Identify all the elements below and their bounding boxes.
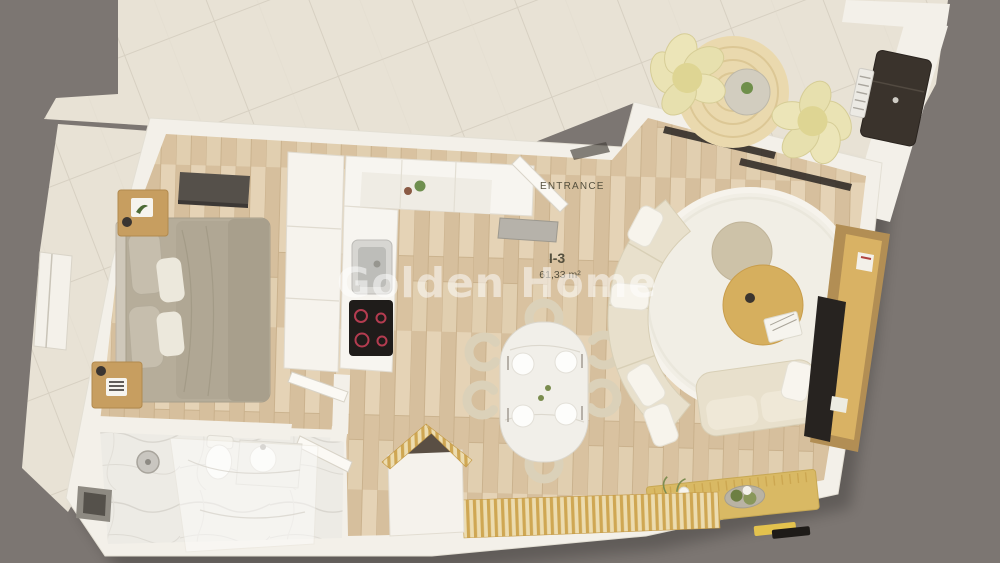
bed-cushion-2 [156,311,185,357]
shelf-books-2 [830,396,848,413]
nightstand-lamp [96,366,106,376]
plate-3 [512,405,534,427]
dining-table [500,322,588,462]
table-deco-2 [538,395,544,401]
wardrobe [284,152,344,372]
slat-house-box [388,450,464,536]
hall-wall-stub [332,374,350,434]
table-deco-1 [545,385,551,391]
floor-plan-render: ENTRANCE [0,0,1000,563]
terrace-table-plant [741,82,753,94]
plate-1 [512,353,534,375]
shower-head-center [145,459,151,465]
table-cup [745,293,755,303]
nightstand-clock [122,217,132,227]
nightstand-south-frame [106,378,127,396]
shelf-books-1 [856,252,874,272]
watermark-text: Golden Home [337,259,658,307]
bed-blanket [228,219,269,401]
kitchen-cooktop [349,300,393,356]
shower-glass-panel [170,438,318,552]
floor-plan-canvas: ENTRANCE [0,0,1000,563]
kitchen-oven-front [498,218,558,242]
kitchen-plant [415,181,426,192]
kitchen-pot [404,187,412,195]
shower-niche-inner [83,492,106,516]
bedroom-window [34,252,72,350]
entrance-label: ENTRANCE [540,181,605,192]
wardrobe-body [284,152,344,372]
plate-2 [555,351,577,373]
plate-4 [555,403,577,425]
